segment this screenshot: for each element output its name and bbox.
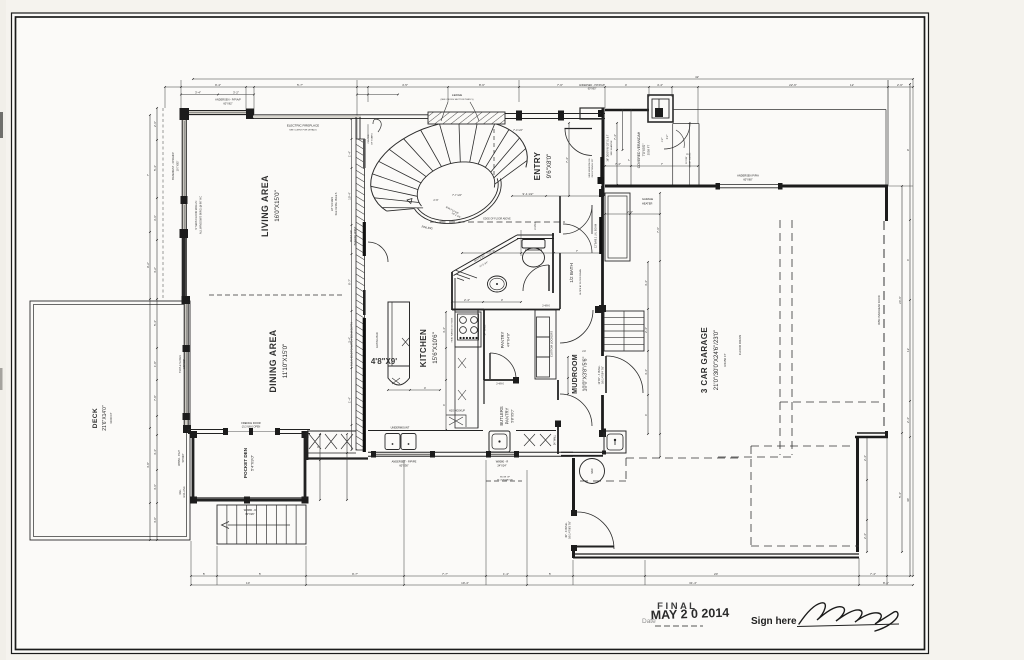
- svg-text:RAIL: RAIL: [179, 489, 182, 495]
- svg-text:7'-4": 7'-4": [870, 572, 876, 576]
- svg-text:LIT NICHES: LIT NICHES: [330, 197, 334, 211]
- svg-text:5'4"X9'0": 5'4"X9'0": [250, 454, 255, 471]
- svg-text:2'-4": 2'-4": [863, 533, 867, 539]
- svg-text:ALL WINDOWS 80RG @ 96" HC: ALL WINDOWS 80RG @ 96" HC: [199, 196, 203, 234]
- svg-text:36"X80": 36"X80": [686, 156, 688, 164]
- svg-text:W2550 - P/A/P: W2550 - P/A/P: [178, 450, 181, 466]
- svg-text:R4350 FT: R4350 FT: [723, 353, 727, 367]
- svg-text:EATING BAR: EATING BAR: [375, 332, 379, 348]
- svg-text:COVERED VERANDAH: COVERED VERANDAH: [637, 131, 641, 168]
- svg-text:2'-6": 2'-6": [433, 198, 438, 202]
- svg-text:60"X60": 60"X60": [588, 88, 597, 91]
- svg-text:36" DOOR W/ 20" SL & T: 36" DOOR W/ 20" SL & T: [607, 134, 610, 161]
- svg-text:20': 20': [714, 572, 718, 576]
- svg-text:SEE DETAIL PAGE 5: SEE DETAIL PAGE 5: [335, 192, 338, 215]
- svg-text:4'-4": 4'-4": [442, 327, 446, 333]
- svg-text:12': 12': [906, 348, 910, 352]
- svg-text:Sign here: Sign here: [751, 616, 797, 627]
- svg-text:24" WALL: 24" WALL: [554, 434, 557, 445]
- svg-text:SEE CLIENT FOR DETAILS: SEE CLIENT FOR DETAILS: [289, 129, 317, 132]
- svg-text:1'-4": 1'-4": [347, 151, 351, 157]
- svg-text:4'4"X4'0": 4'4"X4'0": [507, 332, 511, 347]
- svg-text:10'-4": 10'-4": [347, 192, 351, 200]
- svg-text:4'-0": 4'-0": [153, 517, 157, 523]
- svg-text:10': 10': [246, 581, 250, 585]
- svg-text:7'-6": 7'-6": [557, 83, 563, 87]
- svg-text:107"X83": 107"X83": [176, 161, 180, 172]
- svg-text:5'-7": 5'-7": [297, 83, 303, 87]
- svg-text:9'6"X8'0": 9'6"X8'0": [546, 154, 553, 179]
- svg-text:31'-4": 31'-4": [689, 581, 697, 585]
- svg-text:ENTRY: ENTRY: [533, 151, 542, 180]
- svg-text:2'-4": 2'-4": [464, 298, 470, 302]
- svg-text:24'-6": 24'-6": [898, 296, 902, 304]
- svg-text:3'-6": 3'-6": [153, 215, 157, 221]
- svg-text:7'-8": 7'-8": [153, 395, 157, 401]
- svg-text:DINING AREA: DINING AREA: [268, 329, 278, 392]
- svg-text:W/W OVERHEAD DOOR: W/W OVERHEAD DOOR: [877, 295, 881, 325]
- svg-text:60"X26": 60"X26": [245, 512, 254, 516]
- svg-text:2'-6": 2'-6": [153, 121, 157, 127]
- svg-text:4'-4": 4'-4": [153, 449, 157, 455]
- svg-text:3'-4": 3'-4": [195, 91, 201, 95]
- svg-text:5/8 1/4"X9'4 7/8": 5/8 1/4"X9'4 7/8": [602, 366, 605, 384]
- svg-text:5'-4": 5'-4": [153, 165, 157, 171]
- svg-text:HEATER: HEATER: [642, 202, 652, 206]
- svg-text:5'-4": 5'-4": [489, 249, 495, 253]
- svg-text:22'-6": 22'-6": [789, 83, 797, 87]
- svg-text:7'-4": 7'-4": [615, 162, 621, 166]
- svg-text:7'-4": 7'-4": [565, 157, 569, 163]
- svg-text:60"X36": 60"X36": [399, 464, 408, 468]
- svg-text:2'-4": 2'-4": [863, 455, 867, 461]
- svg-text:7'-6": 7'-6": [656, 227, 660, 233]
- svg-text:50"X60": 50"X60": [182, 454, 185, 463]
- svg-text:4'-4": 4'-4": [644, 369, 648, 375]
- svg-text:15'6"X10'6": 15'6"X10'6": [432, 332, 439, 364]
- svg-text:UNDERMOUNT: UNDERMOUNT: [391, 426, 410, 430]
- svg-text:BASEMENT - FP/FA/FP: BASEMENT - FP/FA/FP: [171, 152, 175, 180]
- svg-text:SEE SHADOW: SEE SHADOW: [610, 140, 613, 156]
- svg-text:3558 FT: 3558 FT: [647, 145, 651, 156]
- svg-text:5'-4": 5'-4": [153, 320, 157, 326]
- svg-text:PANTRY: PANTRY: [500, 331, 505, 348]
- svg-text:ELECTRIC FIREPLACE: ELECTRIC FIREPLACE: [287, 124, 319, 128]
- svg-text:8'-6": 8'-6": [479, 83, 485, 87]
- svg-text:OF STAIRS: OF STAIRS: [371, 133, 374, 145]
- svg-text:1'-2": 1'-2": [662, 138, 664, 143]
- svg-text:TRIPLE SLIDER: TRIPLE SLIDER: [179, 355, 182, 373]
- svg-text:PANTRY: PANTRY: [505, 407, 510, 424]
- svg-text:BUILT-UP: BUILT-UP: [349, 230, 353, 242]
- svg-text:9'-7": 9'-7": [352, 572, 358, 576]
- svg-text:2-4/8-0: 2-4/8-0: [542, 305, 550, 308]
- svg-text:1/2 BATH: 1/2 BATH: [569, 263, 574, 283]
- svg-text:EDGE OF: EDGE OF: [500, 477, 511, 479]
- svg-text:19'-4": 19'-4": [461, 581, 469, 585]
- svg-text:2-4/8-0: 2-4/8-0: [496, 383, 504, 386]
- svg-text:9'-2": 9'-2": [146, 262, 150, 268]
- svg-text:5'-4": 5'-4": [898, 492, 902, 498]
- svg-text:MUDROOM: MUDROOM: [572, 354, 579, 394]
- svg-text:9'-4": 9'-4": [215, 83, 221, 87]
- svg-text:108"X80": 108"X80": [183, 359, 186, 369]
- svg-text:VAC: VAC: [590, 468, 594, 474]
- svg-text:60"X60": 60"X60": [743, 178, 752, 182]
- svg-text:LIVING AREA: LIVING AREA: [260, 175, 270, 237]
- svg-text:2'-4": 2'-4": [906, 417, 910, 423]
- svg-text:3'-2": 3'-2": [233, 91, 239, 95]
- svg-text:W8080 - R: W8080 - R: [496, 460, 509, 464]
- svg-text:31000 FT: 31000 FT: [109, 412, 113, 424]
- svg-text:9'-4 1/2": 9'-4 1/2": [523, 192, 534, 196]
- svg-text:GRILLING: GRILLING: [183, 486, 186, 497]
- svg-text:7'-7 1/2": 7'-7 1/2": [452, 193, 462, 197]
- svg-text:21'6"X14'0": 21'6"X14'0": [102, 405, 108, 431]
- svg-text:H2O HOOKUP: H2O HOOKUP: [449, 410, 465, 413]
- svg-text:42': 42': [695, 75, 699, 79]
- svg-text:SLOPE AT FLOOR DRAIN: SLOPE AT FLOOR DRAIN: [579, 269, 582, 295]
- svg-text:1'-8": 1'-8": [153, 361, 157, 367]
- svg-text:24"X24": 24"X24": [497, 464, 506, 468]
- svg-text:EDGE OF FLOOR ABOVE: EDGE OF FLOOR ABOVE: [483, 218, 511, 221]
- svg-text:16'0"X15'0": 16'0"X15'0": [274, 190, 281, 222]
- svg-text:2-4/8-0: 2-4/8-0: [534, 222, 537, 230]
- svg-text:FLOOR ABOVE: FLOOR ABOVE: [497, 479, 513, 482]
- svg-text:5/8 1/4"X6'5 7/8": 5/8 1/4"X6'5 7/8": [569, 521, 572, 539]
- svg-text:8'-7": 8'-7": [347, 279, 351, 285]
- svg-text:4'-6": 4'-6": [153, 484, 157, 490]
- svg-text:9' MAIN FLOOR WALLS:: 9' MAIN FLOOR WALLS:: [194, 200, 198, 229]
- svg-text:4'-2": 4'-2": [153, 267, 157, 273]
- svg-text:DECK: DECK: [92, 408, 99, 428]
- svg-text:4'-5": 4'-5": [402, 83, 408, 87]
- svg-text:7'-4": 7'-4": [613, 134, 617, 140]
- svg-text:ANDERSET - P/P/PE: ANDERSET - P/P/PE: [392, 460, 417, 464]
- svg-text:(2) 2-9/8-0 OPEN: (2) 2-9/8-0 OPEN: [242, 426, 261, 429]
- svg-text:1'-4": 1'-4": [503, 572, 509, 576]
- svg-text:2'-2": 2'-2": [667, 135, 669, 140]
- svg-text:2'-6": 2'-6": [897, 83, 903, 87]
- svg-text:W8080 - D: W8080 - D: [244, 508, 257, 512]
- svg-text:5'8"X5'0": 5'8"X5'0": [511, 408, 515, 422]
- svg-text:4'-8": 4'-8": [146, 462, 150, 468]
- svg-text:MAY 2 0 2014: MAY 2 0 2014: [650, 606, 729, 623]
- svg-text:7'-3 1/2": 7'-3 1/2": [513, 128, 523, 132]
- svg-text:3 CAR GARAGE: 3 CAR GARAGE: [700, 327, 709, 393]
- svg-text:KITCHEN: KITCHEN: [419, 329, 428, 367]
- svg-text:(SEE CROSS SECTION THRU 5): (SEE CROSS SECTION THRU 5): [440, 99, 473, 101]
- svg-text:12': 12': [850, 83, 854, 87]
- svg-text:3'-4": 3'-4": [347, 337, 351, 343]
- svg-text:8'-4": 8'-4": [883, 581, 889, 585]
- svg-text:11'10"X15'0": 11'10"X15'0": [282, 344, 289, 379]
- svg-text:CENTER: CENTER: [368, 134, 370, 143]
- svg-text:2'-4": 2'-4": [644, 327, 648, 333]
- svg-text:60"X62": 60"X62": [223, 102, 232, 106]
- svg-text:7'0"X5'0": 7'0"X5'0": [642, 144, 646, 157]
- svg-text:4'-4": 4'-4": [644, 280, 648, 286]
- svg-text:ANDERSEN - P/P/A/P: ANDERSEN - P/P/A/P: [215, 98, 241, 102]
- svg-text:7'-7": 7'-7": [442, 572, 448, 576]
- svg-text:CUSTOM LOCKERS: CUSTOM LOCKERS: [550, 331, 554, 357]
- svg-text:SIDE WINDOW ON: SIDE WINDOW ON: [589, 158, 591, 178]
- svg-text:GARAGE: GARAGE: [642, 197, 653, 201]
- svg-text:FLOOR DRAIN: FLOOR DRAIN: [738, 335, 742, 356]
- svg-text:1'-4": 1'-4": [347, 397, 351, 403]
- svg-text:FRENCH DOOR: FRENCH DOOR: [241, 421, 260, 425]
- svg-text:2'-4": 2'-4": [627, 210, 633, 214]
- svg-text:4'8"X9': 4'8"X9': [371, 357, 397, 366]
- svg-text:ANDERSEN P/P/A: ANDERSEN P/P/A: [737, 174, 759, 178]
- svg-text:21'0"/30'0"X24'6"/23'0": 21'0"/30'0"X24'6"/23'0": [714, 330, 720, 390]
- svg-text:BUTLERS: BUTLERS: [499, 406, 504, 426]
- svg-text:10'0"X3'8"/5'6": 10'0"X3'8"/5'6": [583, 356, 589, 391]
- svg-text:4'-4": 4'-4": [657, 83, 663, 87]
- svg-text:40': 40': [906, 498, 910, 502]
- svg-text:DOOR SWING: DOOR SWING: [690, 152, 692, 167]
- svg-text:POCKET DEN: POCKET DEN: [243, 447, 248, 478]
- svg-text:LEDGE: LEDGE: [452, 93, 462, 97]
- svg-text:12"BA/8.1 LVL BEAM: 12"BA/8.1 LVL BEAM: [595, 224, 598, 248]
- svg-text:DR EXTENDS 7/8": DR EXTENDS 7/8": [592, 159, 594, 178]
- svg-text:HEAT RANGE OUTSIDE: HEAT RANGE OUTSIDE: [451, 317, 454, 342]
